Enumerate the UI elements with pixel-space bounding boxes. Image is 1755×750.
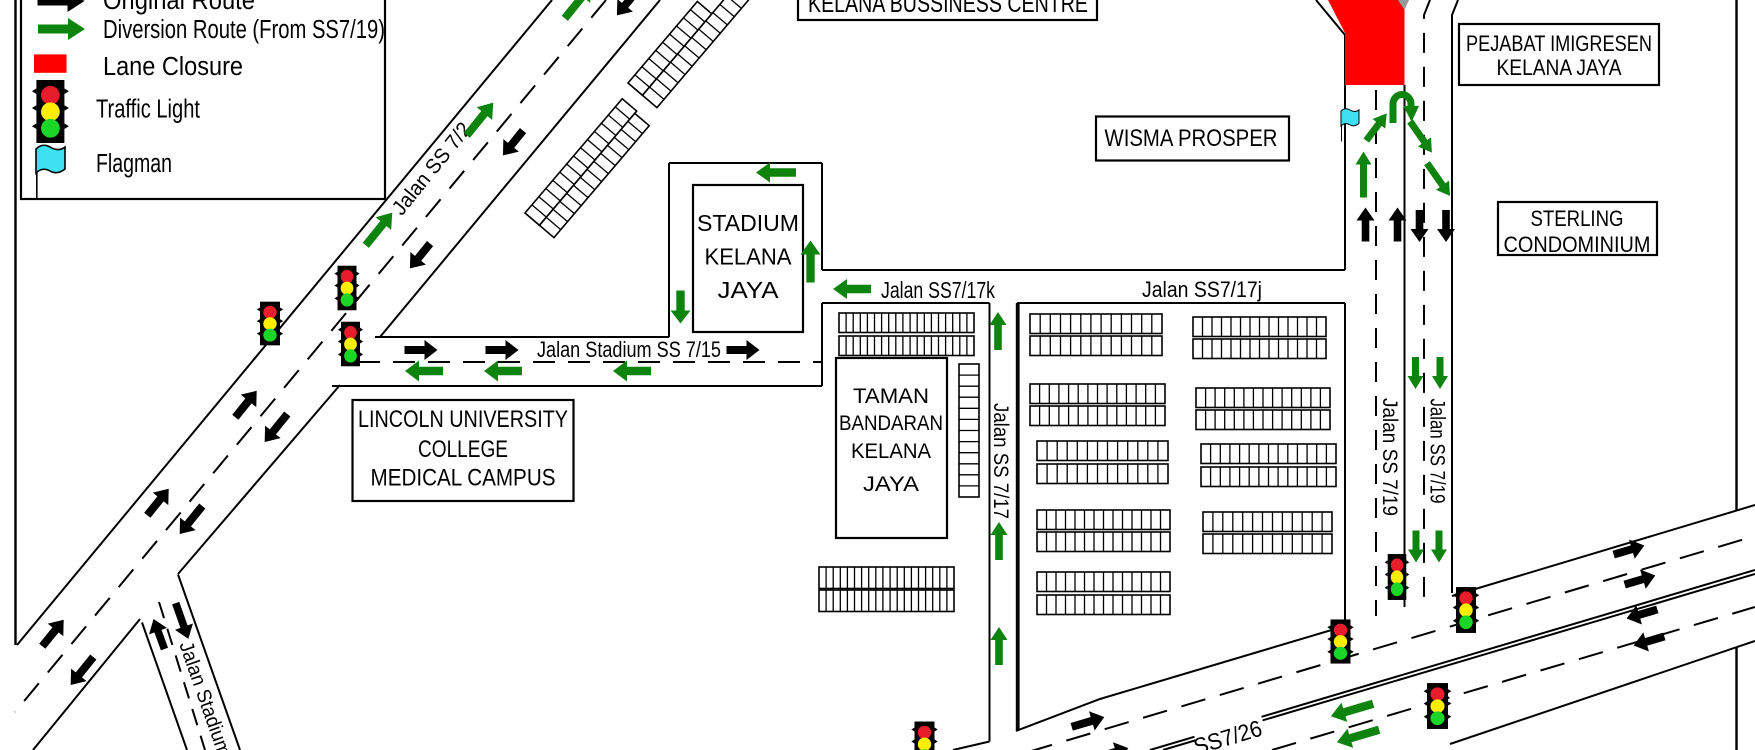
svg-text:Jalan SS 7/19: Jalan SS 7/19	[1426, 399, 1449, 504]
svg-text:JAYA: JAYA	[718, 277, 780, 303]
svg-text:STADIUM: STADIUM	[697, 210, 799, 236]
svg-text:Traffic Light: Traffic Light	[96, 96, 200, 124]
svg-text:KELANA JAYA: KELANA JAYA	[1497, 55, 1622, 80]
svg-text:KELANA: KELANA	[705, 244, 793, 270]
svg-text:Jalan Stadium SS 7/15: Jalan Stadium SS 7/15	[537, 337, 721, 362]
svg-text:Lane Closure: Lane Closure	[103, 53, 243, 81]
svg-text:Original Route: Original Route	[103, 0, 255, 15]
svg-text:COLLEGE: COLLEGE	[418, 436, 508, 463]
svg-text:BANDARAN: BANDARAN	[839, 412, 943, 435]
svg-text:Jalan SS 7/17: Jalan SS 7/17	[989, 403, 1012, 519]
svg-text:CONDOMINIUM: CONDOMINIUM	[1504, 232, 1651, 257]
svg-text:PEJABAT IMIGRESEN: PEJABAT IMIGRESEN	[1466, 31, 1652, 56]
svg-text:KELANA: KELANA	[851, 440, 931, 463]
svg-text:Jalan SS 7/19: Jalan SS 7/19	[1378, 398, 1401, 516]
svg-text:Diversion Route (From SS7/19): Diversion Route (From SS7/19)	[103, 16, 385, 44]
svg-text:WISMA PROSPER: WISMA PROSPER	[1105, 125, 1278, 152]
svg-text:Jalan SS7/17j: Jalan SS7/17j	[1142, 277, 1262, 302]
svg-text:Flagman: Flagman	[96, 150, 172, 178]
svg-text:LINCOLN UNIVERSITY: LINCOLN UNIVERSITY	[358, 406, 568, 433]
svg-text:KELANA BUSSINESS CENTRE: KELANA BUSSINESS CENTRE	[808, 0, 1088, 18]
svg-text:TAMAN: TAMAN	[853, 385, 929, 408]
svg-text:Jalan SS7/17k: Jalan SS7/17k	[881, 277, 995, 303]
svg-text:MEDICAL CAMPUS: MEDICAL CAMPUS	[371, 465, 556, 492]
svg-text:STERLING: STERLING	[1531, 206, 1624, 231]
svg-text:JAYA: JAYA	[863, 473, 919, 496]
